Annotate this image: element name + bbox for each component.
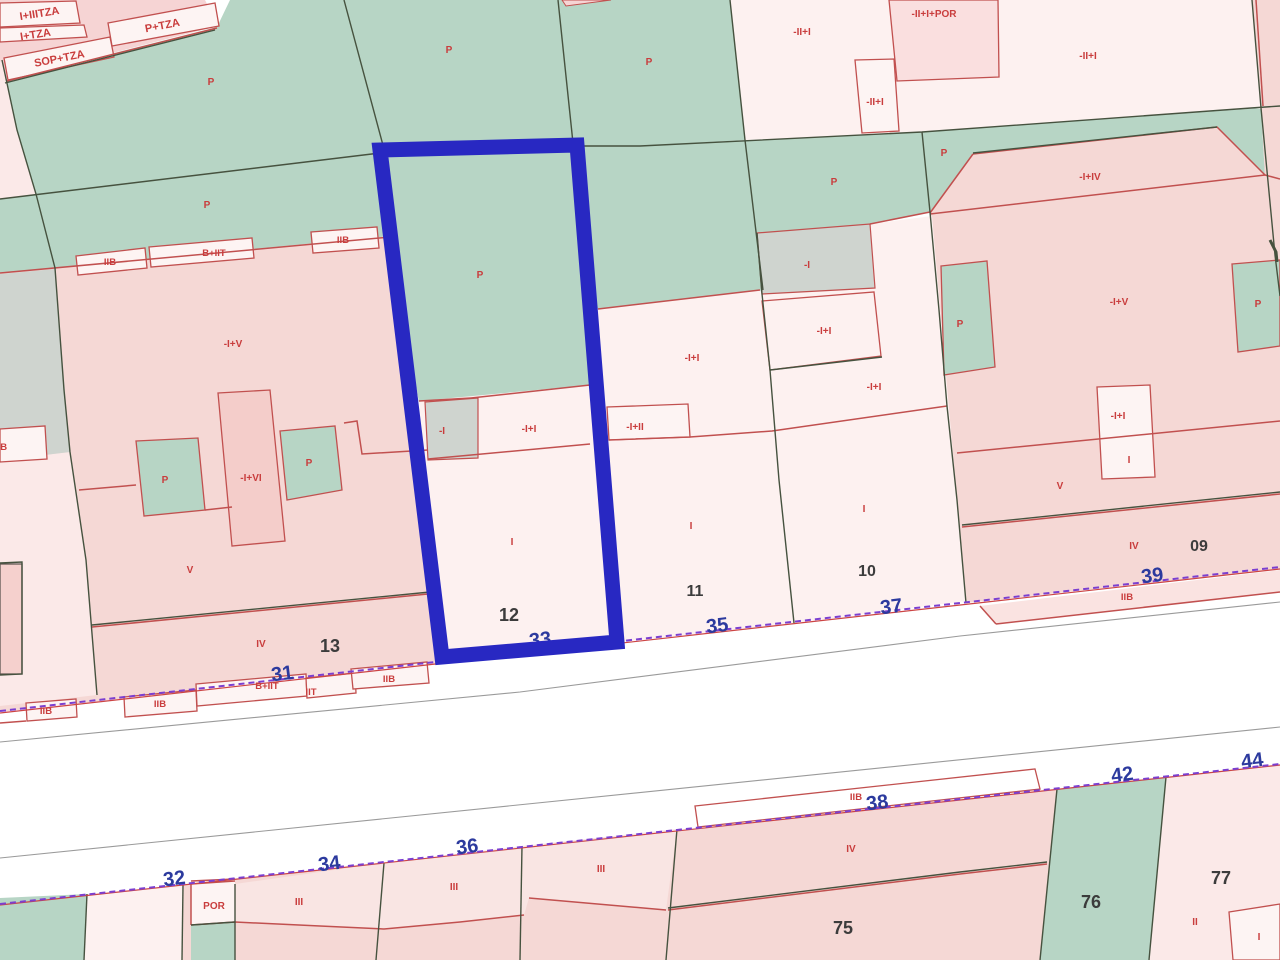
svg-text:-I: -I — [439, 426, 445, 437]
svg-text:09: 09 — [1190, 538, 1208, 555]
svg-text:IIB: IIB — [154, 699, 166, 710]
svg-text:-II+I: -II+I — [1079, 51, 1097, 62]
svg-text:IIB: IIB — [383, 674, 395, 685]
svg-text:IIB: IIB — [337, 235, 349, 246]
svg-text:39: 39 — [1140, 564, 1165, 589]
svg-text:I: I — [511, 537, 514, 548]
svg-text:IIB: IIB — [850, 792, 862, 803]
svg-text:12: 12 — [499, 605, 519, 625]
svg-text:IIB: IIB — [1121, 592, 1133, 603]
svg-text:I: I — [1258, 932, 1261, 943]
svg-text:IIB: IIB — [40, 706, 52, 717]
svg-text:10: 10 — [858, 563, 876, 580]
svg-text:44: 44 — [1240, 749, 1266, 774]
svg-text:-I+I: -I+I — [685, 353, 700, 364]
svg-text:IV: IV — [256, 639, 266, 650]
svg-text:P: P — [646, 57, 653, 68]
svg-text:III: III — [597, 864, 606, 875]
svg-text:77: 77 — [1211, 868, 1231, 888]
svg-text:I: I — [1128, 455, 1131, 466]
svg-text:V: V — [1057, 481, 1064, 492]
svg-text:IIB: IIB — [104, 257, 116, 268]
svg-text:V: V — [187, 565, 194, 576]
svg-text:POR: POR — [203, 901, 225, 912]
svg-text:-I+I: -I+I — [1111, 411, 1126, 422]
svg-text:-I+V: -I+V — [1110, 297, 1129, 308]
svg-text:31: 31 — [270, 662, 295, 687]
svg-text:I: I — [690, 521, 693, 532]
svg-text:-I+I: -I+I — [867, 382, 882, 393]
svg-text:I: I — [863, 504, 866, 515]
svg-text:P: P — [162, 475, 169, 486]
svg-text:P: P — [477, 270, 484, 281]
svg-text:III: III — [295, 897, 304, 908]
svg-text:76: 76 — [1081, 892, 1101, 912]
svg-text:-I+V: -I+V — [224, 339, 243, 350]
svg-text:-I+IV: -I+IV — [1079, 172, 1101, 183]
svg-text:P: P — [831, 177, 838, 188]
svg-text:75: 75 — [833, 918, 853, 938]
svg-text:-I+I: -I+I — [522, 424, 537, 435]
svg-text:III: III — [450, 882, 459, 893]
svg-text:34: 34 — [317, 852, 343, 877]
svg-text:IIB: IIB — [0, 442, 7, 453]
svg-text:IIT: IIT — [305, 687, 316, 698]
svg-text:11: 11 — [687, 583, 704, 600]
svg-text:32: 32 — [162, 867, 187, 892]
svg-text:II: II — [1192, 917, 1198, 928]
svg-text:37: 37 — [879, 595, 904, 620]
svg-text:-I+II: -I+II — [626, 422, 644, 433]
svg-text:-II+I+POR: -II+I+POR — [911, 9, 957, 20]
svg-text:38: 38 — [865, 791, 890, 816]
svg-text:P: P — [941, 148, 948, 159]
svg-text:-I+I: -I+I — [817, 326, 832, 337]
svg-text:P: P — [957, 319, 964, 330]
svg-text:IV: IV — [1129, 541, 1139, 552]
svg-text:13: 13 — [320, 636, 340, 656]
svg-text:-I+VI: -I+VI — [240, 473, 262, 484]
svg-text:B+IIT: B+IIT — [202, 248, 226, 259]
svg-text:-II+I: -II+I — [866, 97, 884, 108]
svg-text:P: P — [204, 200, 211, 211]
svg-text:P: P — [1255, 299, 1262, 310]
svg-text:-I: -I — [804, 260, 810, 271]
svg-text:IV: IV — [846, 844, 856, 855]
svg-text:P: P — [306, 458, 313, 469]
svg-text:35: 35 — [705, 614, 730, 639]
svg-text:42: 42 — [1110, 763, 1135, 788]
svg-text:36: 36 — [455, 835, 480, 860]
svg-text:P: P — [208, 77, 215, 88]
svg-text:-II+I: -II+I — [793, 27, 811, 38]
svg-text:P: P — [446, 45, 453, 56]
